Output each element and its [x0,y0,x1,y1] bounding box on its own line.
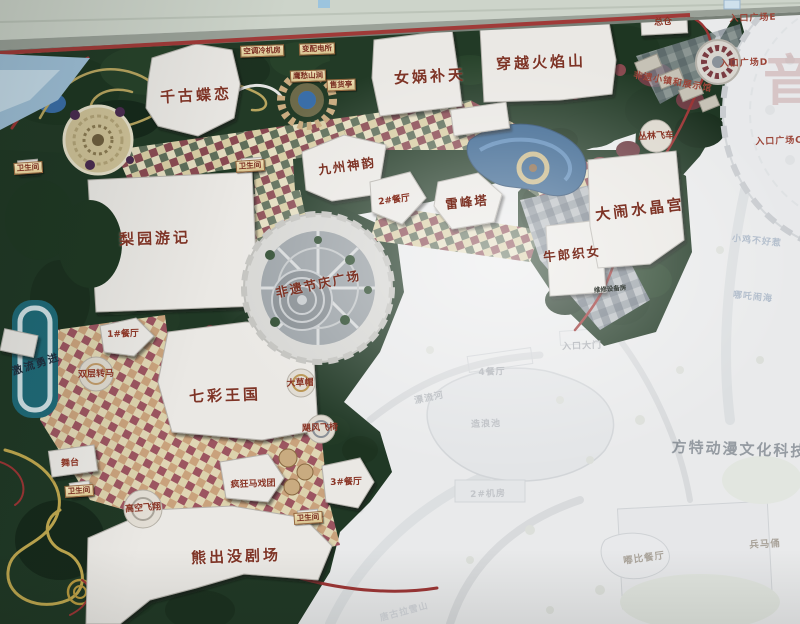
label-layer: 千古蝶恋女娲补天穿越火焰山梨园游记七彩王国熊出没剧场大闹水晶宫九州神韵非遗节庆广… [0,0,800,624]
map-label-zongcang: 总仓 [654,14,673,28]
map-label-canting1: 1#餐厅 [107,326,139,340]
park-map-photo: 千古蝶恋女娲补天穿越火焰山梨园游记七彩王国熊出没剧场大闹水晶宫九州神韵非遗节庆广… [0,0,800,624]
map-label-jufengfeiyi: 飓风飞椅 [302,420,338,434]
map-label-weishengjian4: 卫生间 [293,511,322,525]
map-label-weishengjian1: 卫生间 [13,161,42,175]
map-label-nezhanaohai: 哪吒闹海 [732,287,773,304]
map-label-jifang2: 2#机房 [470,486,506,500]
map-label-rukouguangchangD: 入口广场D [720,55,769,70]
map-label-weishengjian3: 卫生间 [64,484,93,498]
map-label-qiangudielian: 千古蝶恋 [159,83,232,108]
map-label-canting4: 4餐厅 [478,364,506,378]
map-label-jiuzhoushenyun: 九州神韵 [317,152,377,179]
map-label-fengkuangmaxituan: 疯狂马戏团 [230,476,275,491]
map-label-dubicanting: 嘟比餐厅 [622,547,666,567]
map-label-canting2: 2#餐厅 [377,190,410,207]
map-label-jiliuyongjin: 激流勇进 [10,349,62,379]
map-label-liyuanyouji: 梨园游记 [119,226,192,250]
map-label-canting3: 3#餐厅 [330,474,362,488]
map-label-niulangzhinv: 牛郎织女 [542,241,602,266]
map-label-chuanyuehuoyanshan: 穿越火焰山 [496,50,587,74]
map-label-feiyixiaozhen: 非遗小镇和展示馆 [632,68,713,95]
map-label-conglinfeiche: 丛林飞车 [638,128,674,142]
map-label-watermark-fantawild: 方特动漫文化科技园 [671,436,800,462]
map-label-weixiushebeifang: 维修设备房 [593,282,626,295]
map-label-dacaomao: 大草帽 [286,375,313,389]
map-label-nvwabutian: 女娲补天 [393,64,466,89]
map-label-shouhuoting: 售货亭 [327,79,356,92]
map-label-wutai: 舞台 [61,455,80,469]
map-label-feiyijieqingguangchang: 非遗节庆广场 [273,265,362,302]
map-label-qicaiwangguo: 七彩王国 [189,383,262,407]
map-label-leifengta: 雷峰塔 [444,189,489,212]
map-label-tanggulaxueshan: 唐古拉雪山 [378,598,430,624]
map-label-rukouguangchangC: 入口广场C [755,133,800,148]
map-label-rukoudamen: 入口大门 [562,338,602,352]
map-label-xiongchumojuchang: 熊出没剧场 [191,544,282,568]
map-label-zaolangchi: 造浪池 [471,416,501,430]
map-label-danaoshuijinggong: 大闹水晶宫 [594,193,686,225]
map-label-watermark-yin: 音 [763,37,800,116]
map-label-bianpeidiansuo: 变配电所 [299,42,335,55]
map-label-kongtiaolengjifang: 空调冷机房 [240,44,284,58]
map-label-weishengjian2: 卫生间 [235,159,264,173]
map-label-xiaojibuhaore: 小鸡不好惹 [731,231,782,249]
map-label-shuangcengzhuanma: 双层转马 [78,366,114,380]
map-label-yingchoushangjian: 鹰愁山涧 [290,69,326,82]
map-label-bingmayong: 兵马俑 [749,535,781,551]
map-label-gaokongfeixiang: 高空飞翔 [125,499,162,514]
map-label-piaoliuhe: 漂流河 [413,388,445,407]
map-label-rukouguangchangE: 入口广场E [729,10,777,25]
